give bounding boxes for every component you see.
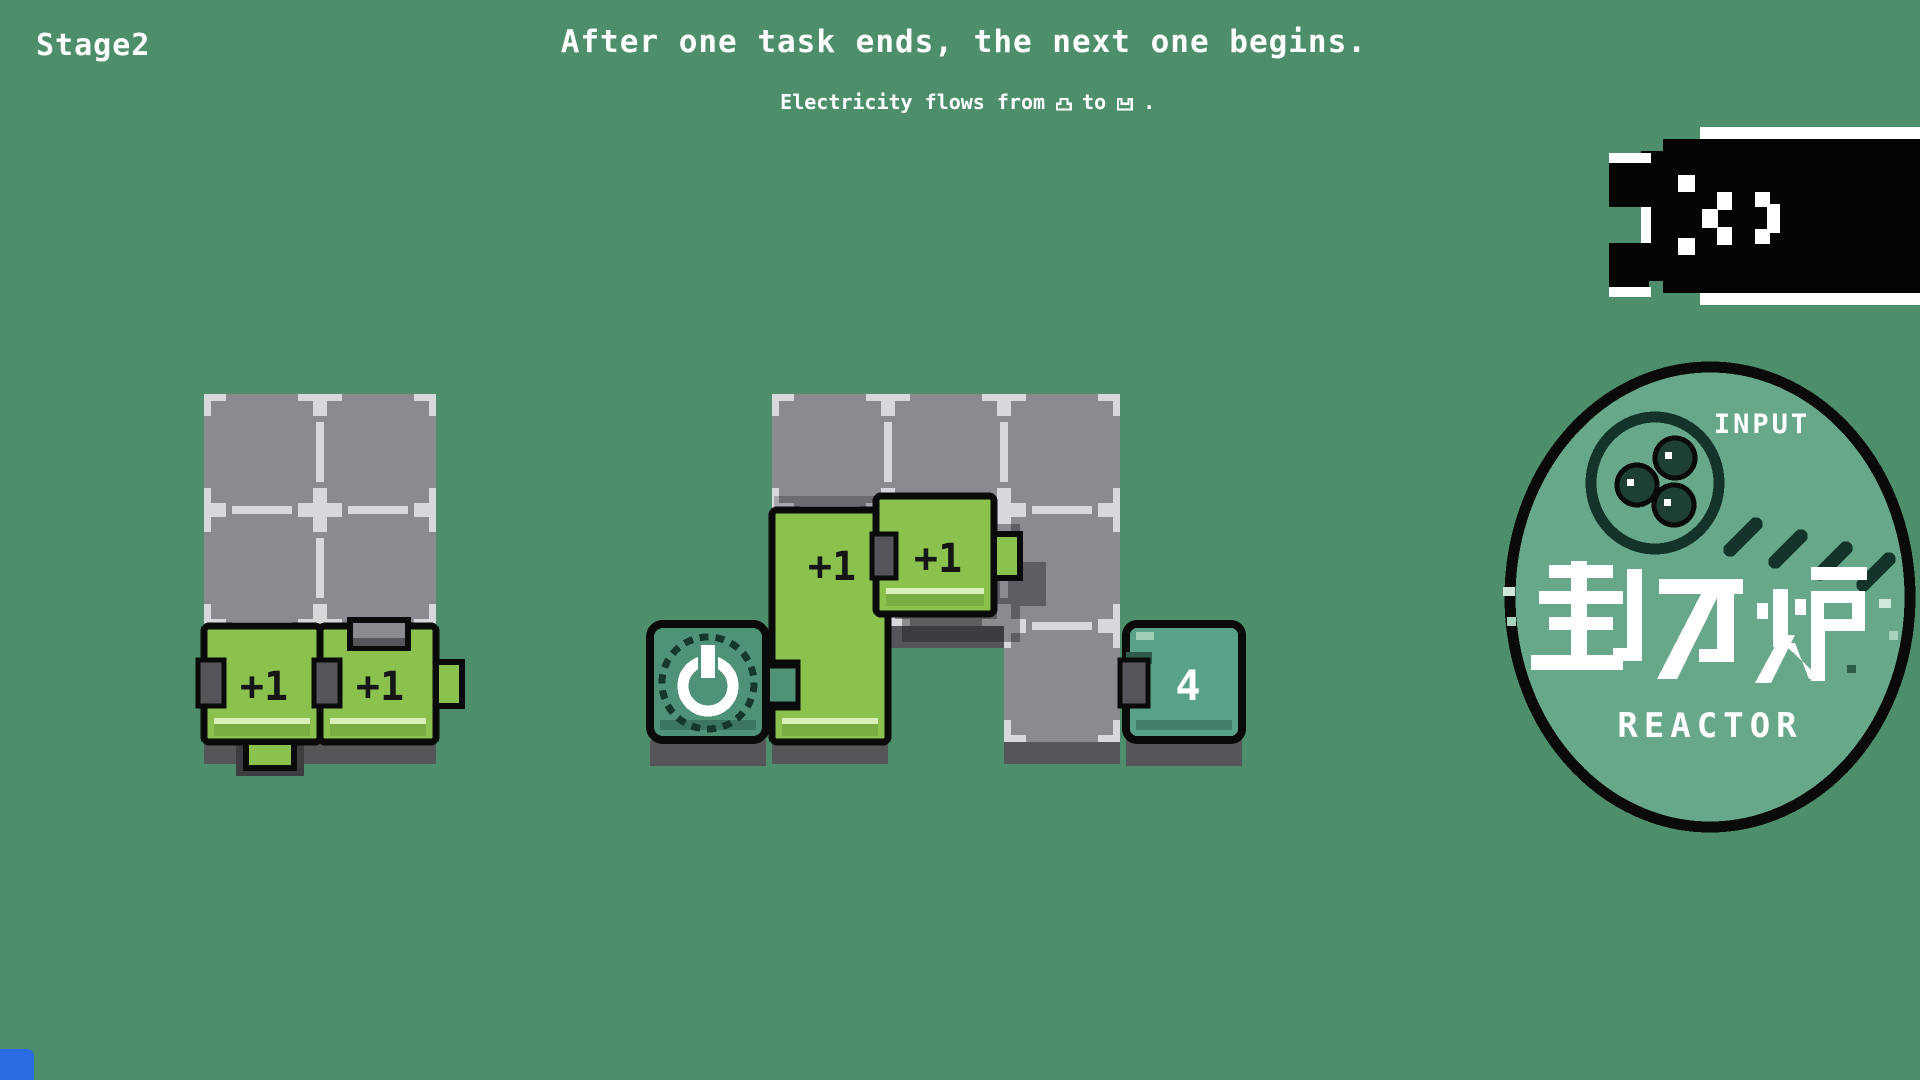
socket-left <box>198 660 224 706</box>
socket-left <box>1120 660 1148 706</box>
piece-generator-left-2[interactable]: +1 <box>314 620 462 742</box>
reactor-badge: INPUT 動力炉 <box>1503 367 1910 827</box>
tab-right <box>994 534 1020 578</box>
mascot-bubble <box>1609 127 1920 305</box>
piece-output-socket[interactable]: 4 <box>1120 624 1242 766</box>
ear-bottom <box>1609 243 1649 287</box>
socket-left <box>314 660 340 706</box>
ear-top <box>1609 163 1649 207</box>
badge-input-label: INPUT <box>1714 409 1810 440</box>
piece-label: +1 <box>240 664 288 710</box>
piece-label: +1 <box>808 544 856 590</box>
tab-right <box>436 662 462 706</box>
badge-reactor-label: REACTOR <box>1617 706 1802 746</box>
piece-label: +1 <box>356 664 404 710</box>
bottom-left-blue-fragment <box>0 1049 34 1080</box>
piece-label: +1 <box>914 536 962 582</box>
piece-label: 4 <box>1175 661 1200 710</box>
badge-kanji-art: 動力炉 <box>1531 561 1867 689</box>
socket-left <box>872 534 896 578</box>
